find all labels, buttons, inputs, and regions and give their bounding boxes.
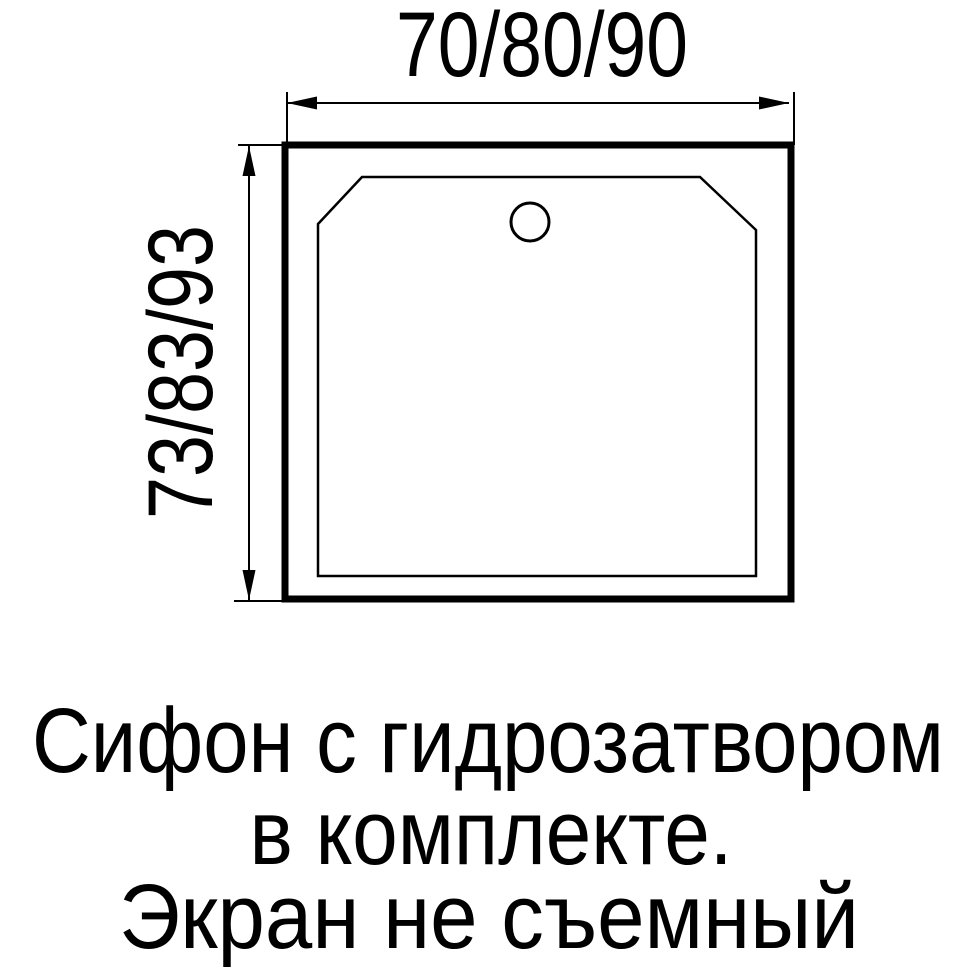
depth-dimension (234, 145, 285, 601)
drain-hole-icon (511, 203, 549, 241)
width-arrow-right-icon (759, 97, 789, 110)
product-dimension-drawing: 70/80/90 73/83/93 Сифон с гидрозатвором … (0, 0, 970, 970)
depth-arrow-down-icon (243, 570, 256, 600)
depth-dimension-label: 73/83/93 (130, 225, 232, 519)
note-line-3: Экран не съемный (119, 866, 859, 968)
width-dimension (287, 92, 794, 145)
shower-tray-diagram: 70/80/90 73/83/93 Сифон с гидрозатвором … (0, 0, 970, 970)
depth-arrow-up-icon (243, 146, 256, 176)
width-arrow-left-icon (287, 97, 317, 110)
note-line-1: Сифон с гидрозатвором (32, 690, 944, 792)
width-dimension-label: 70/80/90 (396, 0, 688, 96)
